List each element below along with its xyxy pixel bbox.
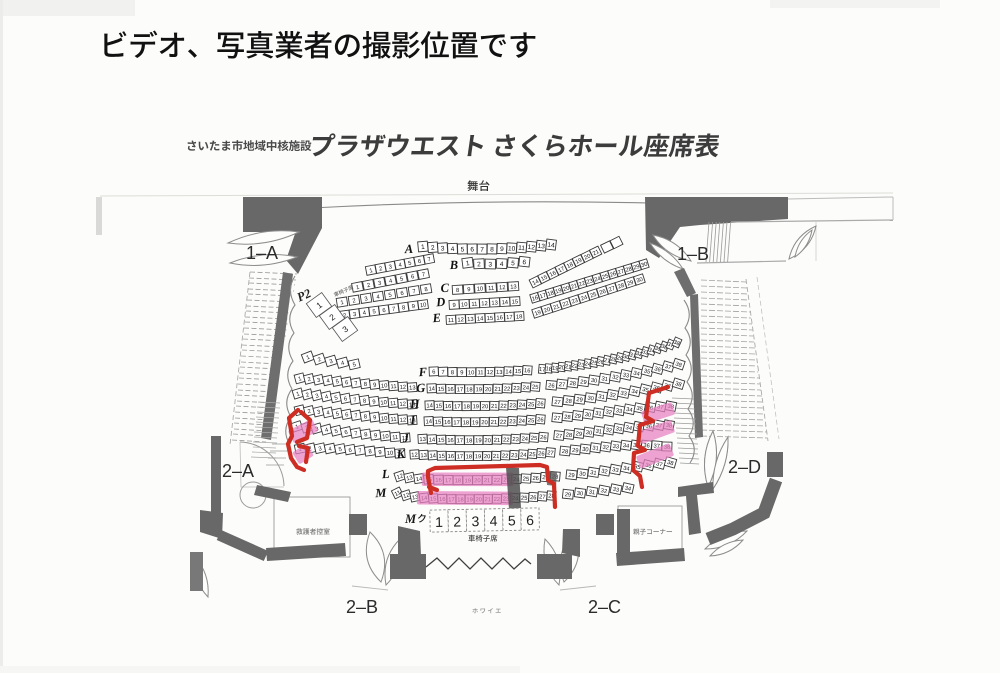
svg-text:31: 31 (588, 489, 595, 496)
svg-text:11: 11 (390, 384, 396, 390)
svg-text:14: 14 (429, 453, 436, 459)
svg-text:14: 14 (425, 419, 433, 425)
svg-text:18: 18 (516, 314, 523, 320)
svg-text:10: 10 (461, 302, 468, 308)
svg-text:24: 24 (522, 385, 530, 391)
svg-text:2: 2 (453, 513, 461, 529)
svg-text:30: 30 (587, 396, 594, 403)
svg-text:2–C: 2–C (588, 597, 621, 617)
svg-text:29: 29 (580, 379, 587, 386)
svg-text:16: 16 (444, 420, 451, 426)
svg-text:F: F (417, 365, 428, 380)
svg-text:M: M (404, 512, 417, 526)
svg-text:32: 32 (601, 469, 608, 476)
svg-text:15: 15 (438, 454, 445, 460)
svg-text:24: 24 (519, 403, 527, 409)
svg-text:16: 16 (447, 438, 454, 444)
svg-text:19: 19 (472, 420, 478, 426)
svg-text:15: 15 (515, 369, 522, 375)
svg-text:26: 26 (537, 401, 544, 408)
svg-text:30: 30 (590, 378, 597, 385)
svg-text:19: 19 (475, 454, 482, 460)
svg-text:20: 20 (484, 438, 491, 444)
svg-text:24: 24 (520, 453, 528, 459)
svg-text:13: 13 (420, 453, 427, 459)
svg-text:22: 22 (503, 437, 510, 443)
svg-text:30: 30 (576, 491, 583, 498)
svg-text:31: 31 (595, 429, 602, 436)
svg-text:26: 26 (538, 451, 545, 458)
svg-text:29: 29 (568, 473, 575, 480)
svg-text:31: 31 (598, 394, 605, 401)
svg-text:26: 26 (548, 383, 555, 390)
svg-text:29: 29 (576, 397, 583, 404)
svg-text:23: 23 (511, 453, 518, 459)
svg-text:21: 21 (491, 420, 498, 426)
svg-text:16: 16 (447, 387, 454, 393)
svg-text:4: 4 (451, 246, 455, 253)
svg-text:25: 25 (529, 452, 536, 458)
svg-text:2–A: 2–A (222, 461, 254, 481)
svg-text:15: 15 (487, 316, 494, 322)
svg-text:13: 13 (537, 243, 545, 251)
svg-text:5: 5 (508, 512, 516, 528)
svg-text:28: 28 (565, 398, 572, 405)
svg-text:12: 12 (527, 244, 535, 252)
svg-text:11: 11 (448, 318, 454, 324)
svg-text:2: 2 (477, 261, 481, 268)
svg-text:22: 22 (502, 453, 509, 459)
svg-text:12: 12 (481, 301, 488, 307)
svg-text:29: 29 (564, 492, 571, 499)
svg-text:2–B: 2–B (346, 597, 378, 617)
svg-text:21: 21 (493, 454, 500, 460)
svg-text:16: 16 (445, 404, 452, 410)
svg-text:5: 5 (460, 246, 464, 253)
svg-text:B: B (448, 258, 458, 272)
svg-text:20: 20 (481, 420, 488, 426)
svg-text:1–A: 1–A (246, 243, 278, 263)
svg-text:20: 20 (484, 454, 491, 460)
svg-text:23: 23 (512, 437, 519, 443)
svg-text:18: 18 (466, 438, 472, 444)
svg-text:12: 12 (499, 285, 506, 291)
svg-text:4: 4 (500, 261, 504, 268)
svg-text:14: 14 (426, 403, 433, 409)
svg-text:10: 10 (468, 370, 474, 376)
svg-text:14: 14 (547, 242, 555, 250)
svg-text:30: 30 (584, 412, 591, 419)
svg-text:17: 17 (454, 404, 461, 410)
svg-text:32: 32 (605, 409, 612, 416)
svg-text:25: 25 (528, 418, 535, 424)
svg-text:11: 11 (390, 401, 396, 407)
svg-text:28: 28 (565, 432, 572, 439)
svg-text:26: 26 (530, 495, 537, 501)
svg-text:A: A (403, 242, 413, 256)
svg-text:33: 33 (615, 426, 622, 433)
svg-text:17: 17 (453, 420, 460, 426)
svg-text:31: 31 (592, 446, 599, 453)
svg-text:6: 6 (526, 512, 534, 528)
svg-text:9: 9 (467, 287, 471, 293)
svg-text:27: 27 (555, 433, 562, 440)
svg-text:32: 32 (600, 488, 607, 495)
svg-text:9: 9 (460, 370, 463, 376)
svg-text:14: 14 (501, 300, 509, 306)
svg-text:18: 18 (463, 420, 469, 426)
svg-text:9: 9 (378, 450, 382, 456)
svg-text:31: 31 (601, 376, 608, 383)
svg-text:32: 32 (602, 445, 609, 452)
svg-text:6: 6 (470, 246, 474, 253)
svg-text:D: D (435, 295, 446, 310)
svg-text:27: 27 (547, 450, 554, 457)
svg-text:21: 21 (491, 404, 498, 410)
svg-text:19: 19 (475, 438, 482, 444)
svg-text:33: 33 (612, 444, 619, 451)
svg-text:1–B: 1–B (677, 244, 709, 264)
svg-text:M: M (374, 486, 388, 501)
svg-text:10: 10 (381, 416, 388, 423)
svg-text:18: 18 (466, 387, 472, 393)
svg-text:E: E (431, 311, 441, 326)
svg-text:C: C (440, 281, 450, 296)
svg-text:25: 25 (521, 496, 528, 502)
svg-text:28: 28 (564, 414, 571, 421)
svg-text:9: 9 (452, 303, 456, 309)
svg-text:23: 23 (513, 386, 520, 392)
svg-text:10: 10 (387, 451, 394, 457)
svg-text:8: 8 (490, 246, 494, 253)
svg-text:30: 30 (582, 447, 589, 454)
svg-text:13: 13 (467, 317, 474, 323)
svg-text:21: 21 (494, 438, 501, 444)
svg-text:33: 33 (612, 467, 620, 474)
svg-text:24: 24 (518, 419, 526, 425)
svg-text:20: 20 (482, 404, 489, 410)
svg-text:3: 3 (488, 261, 492, 268)
svg-text:16: 16 (496, 315, 503, 321)
svg-text:13: 13 (409, 385, 416, 391)
svg-text:4: 4 (490, 513, 498, 529)
svg-text:14: 14 (477, 316, 485, 322)
svg-text:28: 28 (569, 381, 576, 388)
svg-text:14: 14 (429, 437, 436, 443)
svg-text:10: 10 (508, 245, 516, 252)
svg-text:23: 23 (509, 419, 516, 425)
svg-text:15: 15 (512, 299, 519, 305)
svg-text:26: 26 (537, 417, 544, 424)
svg-text:12: 12 (487, 370, 494, 376)
svg-text:32: 32 (611, 374, 618, 381)
svg-text:17: 17 (457, 438, 464, 444)
svg-text:8: 8 (456, 288, 460, 294)
svg-text:22: 22 (500, 420, 507, 426)
svg-text:G: G (416, 381, 426, 395)
svg-text:19: 19 (476, 387, 483, 393)
svg-text:28: 28 (561, 449, 568, 456)
svg-text:16: 16 (448, 454, 455, 460)
svg-text:30: 30 (585, 430, 592, 437)
svg-text:17: 17 (506, 315, 513, 321)
svg-text:11: 11 (471, 302, 477, 308)
svg-text:15: 15 (438, 438, 445, 444)
svg-text:10: 10 (382, 434, 389, 441)
svg-text:11: 11 (518, 245, 526, 253)
svg-text:30: 30 (579, 471, 586, 478)
svg-text:25: 25 (531, 436, 538, 442)
svg-text:27: 27 (554, 416, 561, 423)
svg-text:12: 12 (400, 385, 407, 391)
svg-text:1: 1 (435, 514, 443, 530)
svg-text:15: 15 (435, 420, 442, 426)
svg-text:3: 3 (471, 513, 479, 529)
svg-text:29: 29 (574, 413, 581, 420)
svg-text:24: 24 (521, 436, 529, 442)
svg-text:7: 7 (441, 370, 444, 376)
svg-text:33: 33 (615, 408, 622, 415)
svg-text:L: L (381, 467, 391, 481)
svg-text:27: 27 (539, 494, 546, 500)
svg-text:18: 18 (463, 404, 469, 410)
svg-text:31: 31 (595, 411, 602, 418)
svg-text:31: 31 (590, 470, 597, 477)
svg-text:10: 10 (380, 400, 387, 407)
svg-text:27: 27 (558, 382, 565, 389)
svg-text:32: 32 (609, 392, 616, 399)
svg-text:15: 15 (436, 404, 443, 410)
svg-text:11: 11 (477, 370, 483, 376)
svg-text:20: 20 (485, 387, 492, 393)
svg-text:29: 29 (572, 448, 579, 455)
svg-text:12: 12 (399, 402, 406, 408)
svg-text:13: 13 (419, 437, 426, 443)
svg-text:7: 7 (480, 247, 484, 254)
svg-text:2–D: 2–D (728, 457, 761, 477)
svg-text:10: 10 (477, 286, 484, 292)
svg-text:26: 26 (540, 435, 547, 442)
svg-text:32: 32 (605, 427, 612, 434)
svg-text:26: 26 (532, 476, 539, 482)
svg-text:25: 25 (532, 385, 539, 391)
svg-text:12: 12 (400, 417, 407, 423)
svg-text:19: 19 (473, 404, 479, 410)
svg-text:18: 18 (466, 454, 472, 460)
svg-text:12: 12 (457, 317, 464, 323)
svg-text:25: 25 (528, 402, 535, 408)
svg-text:21: 21 (494, 387, 501, 393)
svg-text:25: 25 (523, 477, 530, 483)
svg-text:11: 11 (488, 286, 494, 292)
svg-text:11: 11 (392, 435, 399, 441)
svg-text:17: 17 (457, 387, 464, 393)
svg-text:22: 22 (504, 386, 511, 392)
svg-text:14: 14 (428, 386, 435, 392)
svg-text:15: 15 (438, 387, 445, 393)
svg-text:12: 12 (411, 452, 418, 458)
svg-text:16: 16 (524, 368, 531, 374)
svg-text:10: 10 (381, 383, 388, 390)
svg-text:H: H (409, 397, 422, 412)
svg-text:6: 6 (432, 370, 435, 376)
svg-text:17: 17 (457, 454, 464, 460)
svg-text:9: 9 (500, 246, 504, 253)
svg-text:29: 29 (575, 431, 582, 438)
svg-text:10: 10 (420, 302, 427, 309)
svg-text:13: 13 (510, 284, 517, 290)
svg-text:13: 13 (491, 300, 498, 306)
svg-text:23: 23 (509, 403, 516, 409)
svg-text:22: 22 (500, 404, 507, 410)
svg-text:11: 11 (390, 417, 397, 423)
svg-text:13: 13 (496, 370, 503, 376)
svg-text:14: 14 (505, 369, 512, 375)
svg-text:27: 27 (554, 400, 561, 407)
svg-text:8: 8 (451, 370, 454, 376)
